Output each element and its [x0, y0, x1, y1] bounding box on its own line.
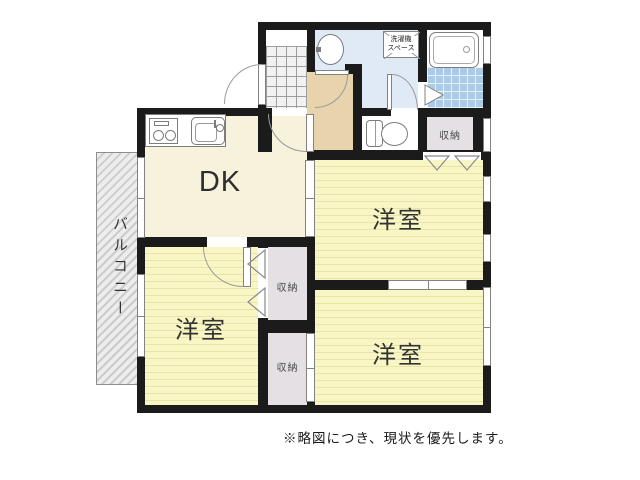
closet-label-mid: 収納 [268, 277, 307, 295]
room-label-bedroom-sw: 洋室 [160, 312, 242, 342]
balcony-label: バルコニー [96, 152, 143, 385]
floor-plan: 洗濯機スペース DK 洋室 洋室 洋室 収納 収納 収納 バルコニー ※略図につ… [0, 0, 640, 480]
wall [353, 108, 391, 116]
closet-label-ne: 収納 [427, 124, 473, 144]
laundry-space-box: 洗濯機スペース [383, 31, 419, 58]
closet-mid-bifold-icon [245, 248, 266, 318]
note-text: ※略図につき、現状を優先します。 [283, 427, 513, 447]
wall [258, 22, 491, 30]
kitchen-sink-icon [191, 117, 225, 145]
closet-label-south: 収納 [268, 357, 307, 375]
sliding-door-bedrooms [388, 280, 467, 290]
doorway-dk-south [207, 237, 247, 247]
window [483, 234, 491, 262]
closet-ne-bifold-icon [423, 155, 481, 172]
stove-icon [149, 118, 178, 144]
room-label-bedroom-ne: 洋室 [357, 202, 439, 232]
toilet-bowl-icon [381, 122, 408, 146]
room-label-bedroom-se: 洋室 [356, 337, 440, 367]
wall [353, 72, 362, 160]
room-label-dk: DK [188, 164, 252, 200]
bath-bifold-door-icon [424, 83, 446, 107]
sliding-door-dk-bedroom [305, 160, 315, 237]
wall [307, 28, 315, 72]
bathtub-icon [429, 32, 479, 68]
closet-south-door [306, 333, 315, 402]
entrance-door-arc [224, 64, 262, 104]
dk-door [306, 114, 314, 152]
wall [258, 320, 315, 333]
window [483, 118, 491, 152]
laundry-space-label: 洗濯機スペース [387, 36, 414, 53]
window [483, 36, 491, 64]
window [483, 287, 491, 366]
washbasin-icon [317, 34, 344, 65]
genkan-tile [266, 46, 307, 108]
window [483, 176, 491, 202]
